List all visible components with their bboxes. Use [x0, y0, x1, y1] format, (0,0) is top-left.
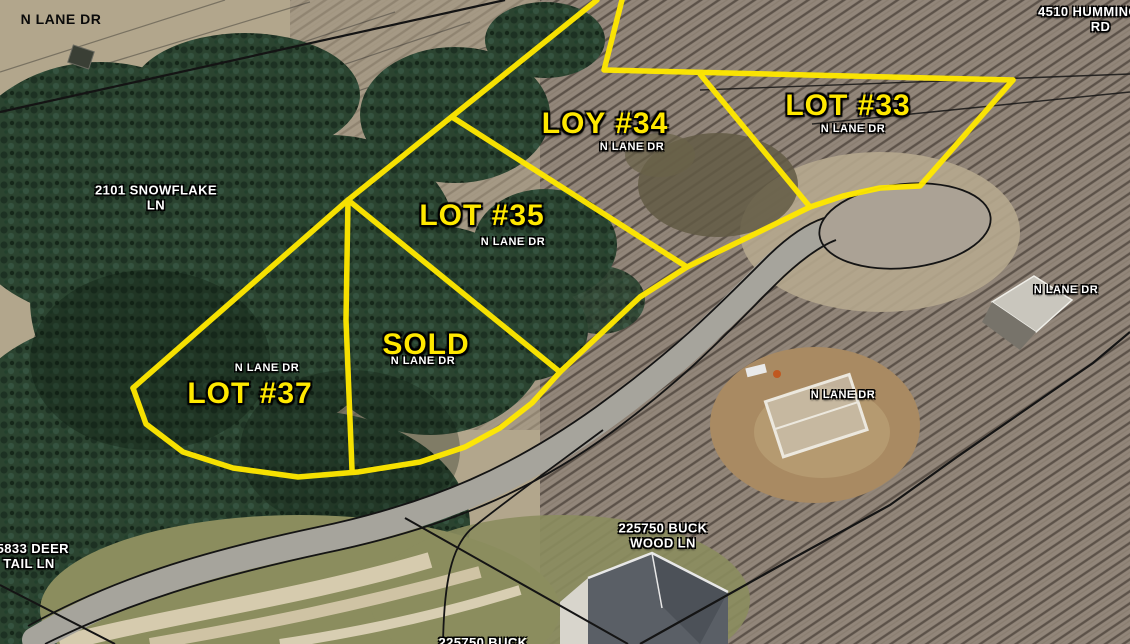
- street-label-lot35: N LANE DR: [481, 236, 545, 248]
- construction-site: [710, 347, 920, 503]
- lot-label-35: LOT #35: [419, 199, 544, 233]
- street-label-top-left: N LANE DR: [21, 12, 102, 28]
- street-label-right-house: N LANE DR: [1034, 284, 1098, 296]
- aerial-photo: [0, 0, 1130, 644]
- address-label-buck-wood-bottom: 225750 BUCK WOOD LN: [433, 636, 533, 644]
- street-label-sold: N LANE DR: [391, 355, 455, 367]
- address-snowflake-line2: LN: [95, 198, 217, 213]
- lot-label-34: LOY #34: [542, 107, 669, 141]
- address-label-hummingbird: 4510 HUMMINGBIRD RD: [1038, 5, 1130, 34]
- map-canvas: N LANE DR 2101 SNOWFLAKE LN 4510 HUMMING…: [0, 0, 1130, 644]
- address-deer-tail-line1: 25833 DEER: [0, 542, 78, 557]
- address-buck-wood-line2: WOOD LN: [619, 536, 708, 551]
- address-buck-wood-bottom-line1: 225750 BUCK: [433, 636, 533, 644]
- address-buck-wood-line1: 225750 BUCK: [619, 521, 708, 536]
- address-hummingbird-line1: 4510 HUMMINGBIRD: [1038, 5, 1130, 20]
- address-label-snowflake: 2101 SNOWFLAKE LN: [95, 183, 217, 212]
- address-snowflake-line1: 2101 SNOWFLAKE: [95, 183, 217, 198]
- address-hummingbird-line2: RD: [1038, 20, 1130, 35]
- address-deer-tail-line2: TAIL LN: [0, 557, 78, 572]
- street-label-lot34: N LANE DR: [600, 141, 664, 153]
- street-label-lot37: N LANE DR: [235, 362, 299, 374]
- address-label-buck-wood: 225750 BUCK WOOD LN: [619, 521, 708, 550]
- street-label-construction: N LANE DR: [811, 389, 875, 401]
- address-label-deer-tail: 25833 DEER TAIL LN: [0, 542, 78, 571]
- lot-label-37: LOT #37: [187, 377, 312, 411]
- street-label-lot33: N LANE DR: [821, 123, 885, 135]
- lot-label-33: LOT #33: [785, 89, 910, 123]
- excavator: [773, 370, 781, 378]
